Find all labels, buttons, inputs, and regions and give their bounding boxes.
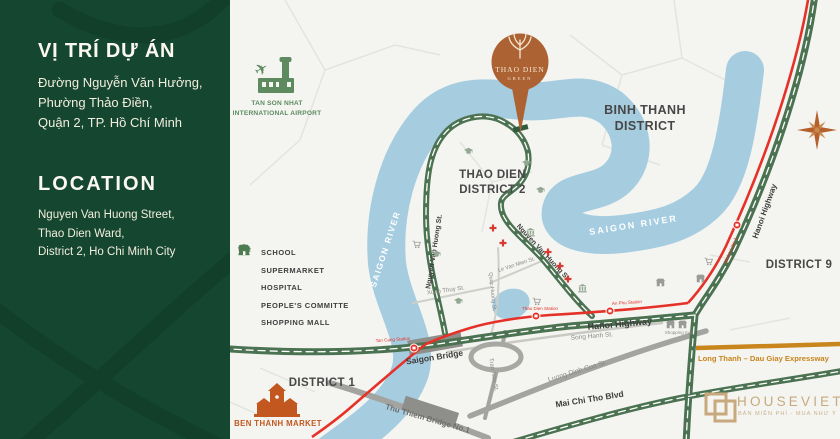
- legend-item-supermarket: SUPERMARKET: [238, 262, 349, 280]
- compass-icon: [797, 110, 837, 150]
- hospital-icon: [500, 240, 507, 247]
- houseviet-logo-icon: [706, 394, 735, 421]
- sidebar-address-en: Nguyen Van Huong Street, Thao Dien Ward,…: [38, 206, 230, 261]
- sidebar-address-vi: Đường Nguyễn Văn Hưởng, Phường Thảo Điền…: [38, 73, 230, 133]
- district-label-district-9: DISTRICT 9: [758, 258, 840, 273]
- address-vi-line1: Đường Nguyễn Văn Hưởng,: [38, 73, 230, 93]
- svg-text:✈: ✈: [252, 59, 272, 80]
- airport-label-line2: INTERNATIONAL AIRPORT: [226, 109, 328, 119]
- shopping-mall-icon: [696, 275, 705, 283]
- station-tan-cang: [410, 344, 418, 352]
- metro-label-an-phu: An Phu Station: [612, 299, 643, 306]
- station-an-phu: [606, 307, 614, 315]
- supermarket-icon: [413, 241, 421, 248]
- hospital-icon: [238, 281, 252, 294]
- brand-name: HOUSEVIET: [737, 394, 840, 409]
- shopping-mall-icon: [678, 321, 687, 329]
- map-canvas: SAIGON RIVER SAIGON RIVER: [230, 0, 840, 439]
- sidebar: VỊ TRÍ DỰ ÁN Đường Nguyễn Văn Hưởng, Phư…: [0, 0, 230, 439]
- pin-subname: GREEN: [508, 76, 533, 81]
- poi-label-shopping-mall: Shopping mall: [665, 330, 694, 335]
- peoples-committe-icon: [578, 284, 587, 292]
- sidebar-title-en: LOCATION: [38, 173, 230, 196]
- shopping-mall-icon: [666, 321, 675, 329]
- road-label-hanoi-highway: Hanoi Highway: [587, 316, 652, 332]
- airport-label: TAN SON NHAT INTERNATIONAL AIRPORT: [226, 99, 328, 119]
- hospital-icon: [490, 225, 497, 232]
- shopping-mall-icon: [656, 279, 665, 287]
- roundabout: [471, 344, 521, 370]
- address-vi-line3: Quận 2, TP. Hồ Chí Minh: [38, 113, 230, 133]
- address-en-line1: Nguyen Van Huong Street,: [38, 206, 230, 224]
- road-label-luong-dinh-cua: Luong Dinh Cua St.: [547, 359, 608, 384]
- supermarket-icon: [533, 298, 541, 305]
- legend-item-shopping-mall: SHOPPING MALL: [238, 314, 349, 332]
- station-thao-dien: [532, 312, 540, 320]
- school-icon: [454, 298, 463, 304]
- street-label-quoc-huong: Quoc Huong St.: [487, 272, 497, 312]
- address-en-line3: District 2, Ho Chi Minh City: [38, 243, 230, 261]
- address-vi-line2: Phường Thảo Điền,: [38, 93, 230, 113]
- metro-label-thao-dien: Thao Dien Station: [522, 306, 559, 311]
- station-rach-chiec: [733, 221, 741, 229]
- address-en-line2: Thao Dien Ward,: [38, 225, 230, 243]
- location-map-page: VỊ TRÍ DỰ ÁN Đường Nguyễn Văn Hưởng, Phư…: [0, 0, 840, 439]
- supermarket-icon: [238, 264, 252, 277]
- map-svg: SAIGON RIVER SAIGON RIVER: [230, 0, 840, 439]
- expressway-line: [696, 344, 840, 348]
- ben-thanh-market-label: BEN THANH MARKET: [230, 419, 326, 428]
- legend-item-school: SCHOOL: [238, 244, 349, 262]
- legend-item-peoples-committe: PEOPLE'S COMMITTE: [238, 297, 349, 315]
- expressway-label: Long Thanh – Dau Giay Expressway: [698, 354, 840, 363]
- peoples-committe-icon: [238, 299, 252, 312]
- shopping-mall-icon: [238, 316, 252, 329]
- brand-tagline: BÁN MIỄN PHÍ - MUA NHƯ Ý: [738, 411, 837, 417]
- road-label-mai-chi-tho: Mai Chi Tho Blvd: [555, 389, 625, 410]
- district-label-district-1: DISTRICT 1: [282, 376, 362, 391]
- supermarket-icon: [705, 258, 713, 265]
- airport-label-line1: TAN SON NHAT: [226, 99, 328, 109]
- pin-name: THAO DIEN: [495, 65, 545, 74]
- legend-item-hospital: HOSPITAL: [238, 279, 349, 297]
- district-label-binh-thanh: BINH THANH DISTRICT: [585, 102, 705, 135]
- map-legend: SCHOOL SUPERMARKET HOSPITAL PEOPLE'S COM…: [238, 244, 349, 332]
- sidebar-title-vi: VỊ TRÍ DỰ ÁN: [38, 40, 230, 63]
- airport-icon: ✈: [252, 57, 294, 93]
- district-label-thao-dien: THAO DIEN DISTRICT 2: [440, 168, 545, 198]
